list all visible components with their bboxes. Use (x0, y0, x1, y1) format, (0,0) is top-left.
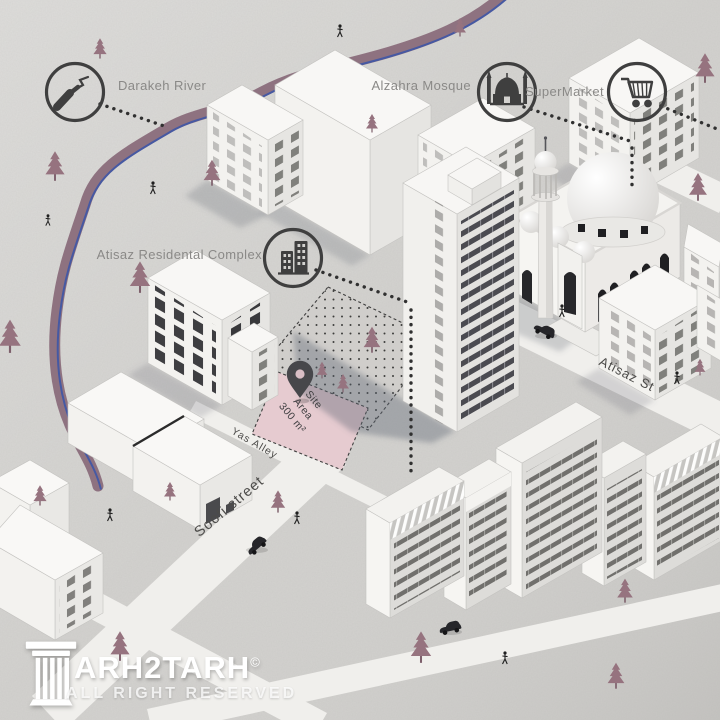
building-apartment-annex (228, 323, 278, 410)
central-tower (403, 147, 519, 432)
logo-tagline: ALL RIGHT RESERVED (66, 685, 297, 703)
legend-residential-label: Atisaz Residental Complex (97, 247, 262, 262)
copyright-mark: © (250, 655, 261, 670)
legend-river-label: Darakeh River (118, 78, 207, 93)
site-location-map: Site Area 300 m² Atisaz St Yas Alley Soo… (0, 0, 720, 720)
map-canvas: Site Area 300 m² Atisaz St Yas Alley Soo… (0, 0, 720, 720)
legend-mosque-label: Alzahra Mosque (371, 78, 471, 93)
legend-supermarket-label: SuperMarket (525, 84, 604, 99)
logo: ARH2TARH© ALL RIGHT RESERVED (24, 638, 254, 718)
logo-brand-text: ARH2TARH (74, 650, 250, 685)
logo-brand: ARH2TARH© (74, 650, 261, 686)
